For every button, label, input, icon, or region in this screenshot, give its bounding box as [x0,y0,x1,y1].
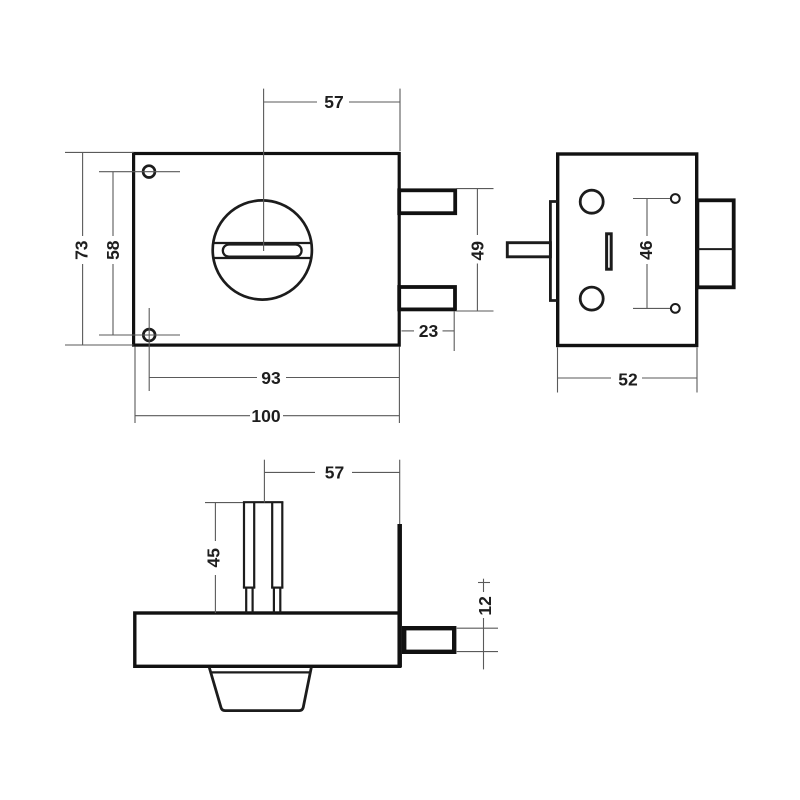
svg-text:45: 45 [204,548,224,568]
svg-text:58: 58 [103,240,123,260]
svg-text:23: 23 [419,321,439,341]
svg-text:49: 49 [468,241,488,261]
svg-text:73: 73 [71,240,91,260]
svg-text:57: 57 [324,92,343,112]
svg-text:93: 93 [261,368,281,388]
svg-text:100: 100 [251,406,280,426]
svg-text:46: 46 [636,240,656,260]
svg-text:12: 12 [475,596,495,616]
svg-text:52: 52 [618,370,638,390]
svg-text:57: 57 [325,463,344,483]
